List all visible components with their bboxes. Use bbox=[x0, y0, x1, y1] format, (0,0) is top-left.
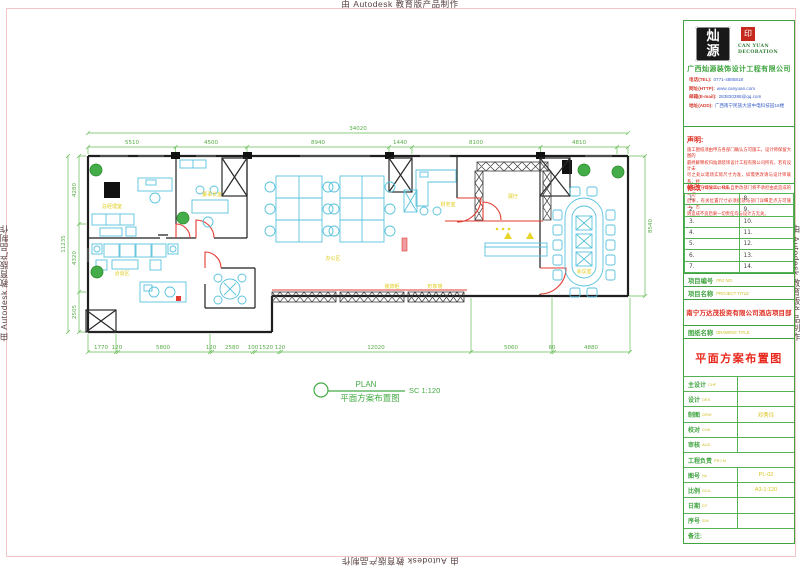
svg-text:5800: 5800 bbox=[156, 345, 170, 351]
field-label-en: DES bbox=[702, 397, 710, 402]
label-showroom: 展厅 bbox=[508, 194, 518, 200]
svg-text:4500: 4500 bbox=[204, 140, 218, 146]
revision-cell: 7. bbox=[685, 261, 740, 272]
callout-title-en: PLAN bbox=[356, 380, 377, 389]
svg-text:8100: 8100 bbox=[469, 140, 483, 146]
company-contacts: 电话(TEL):0771-4885818 网址(HTTP):www.canyua… bbox=[689, 76, 791, 111]
tv-panel bbox=[104, 182, 120, 198]
field-row-designer: 设计DES bbox=[684, 391, 794, 406]
label-finance: 财务室 bbox=[440, 201, 455, 208]
svg-text:4810: 4810 bbox=[572, 140, 586, 146]
furniture bbox=[92, 160, 615, 304]
columns bbox=[104, 152, 572, 198]
field-label-en: No bbox=[702, 473, 707, 478]
field-row-scale: 比例SCA A3-1:120 bbox=[684, 482, 794, 497]
contact-label: 网址(HTTP): bbox=[689, 85, 715, 94]
svg-text:1440: 1440 bbox=[393, 140, 407, 146]
field-label: 审核 bbox=[688, 440, 700, 449]
field-label: 备注: bbox=[688, 531, 702, 540]
svg-text:2505: 2505 bbox=[72, 305, 78, 319]
field-value bbox=[738, 377, 794, 391]
project-number-label-en: PRJ NO. bbox=[716, 278, 733, 283]
label-gm-office: 总经理室 bbox=[102, 203, 122, 210]
label-deco-cabinet: 装饰柜 bbox=[384, 283, 399, 290]
svg-text:5060: 5060 bbox=[504, 345, 518, 351]
svg-text:8540: 8540 bbox=[648, 219, 654, 233]
brand-english: CAN YUAN DECORATION bbox=[738, 44, 778, 56]
field-row-remarks: 备注: bbox=[684, 528, 794, 543]
field-label-en: CHF bbox=[708, 382, 716, 387]
field-label: 比例 bbox=[688, 486, 700, 495]
label-meeting: 会议室 bbox=[576, 268, 591, 275]
label-lounge: 洽谈区 bbox=[114, 270, 129, 277]
contact-email: 邮箱(E-mail):283830388@qq.com bbox=[689, 93, 791, 102]
reception-lamps bbox=[496, 228, 534, 239]
project-number-label: 项目编号 bbox=[688, 276, 713, 285]
shaft-boxes bbox=[86, 158, 570, 332]
project-name: 南宁万达茂投资有限公司酒店项目部 bbox=[684, 299, 794, 325]
field-row-proofread: 校对CHK bbox=[684, 422, 794, 437]
field-label: 图号 bbox=[688, 471, 700, 480]
contact-value: www.canyuan.com bbox=[717, 85, 755, 94]
svg-text:1520: 1520 bbox=[259, 345, 273, 351]
field-label-en: PRJ M bbox=[714, 458, 726, 463]
revision-cell: 13. bbox=[739, 250, 794, 261]
stamp-char-top: 灿 bbox=[695, 29, 731, 44]
floor-plan-drawing: 34020 5510 4500 8940 1440 8100 4810 1123… bbox=[50, 112, 662, 412]
window-lines bbox=[88, 156, 612, 262]
revision-row: 5.12. bbox=[685, 239, 794, 250]
company-logo-section: 灿 源 印 CAN YUAN DECORATION 广西灿源装饰设计工程有限公司… bbox=[684, 21, 794, 126]
revision-cell: 2. bbox=[685, 205, 740, 216]
revision-cell: 1. bbox=[685, 194, 740, 205]
svg-text:1770: 1770 bbox=[94, 345, 108, 351]
red-seal-icon: 印 bbox=[741, 27, 755, 41]
drawing-title: 平面方案布置图 bbox=[684, 338, 794, 376]
drawing-title-row: 图纸名称 DRAWING TITLE bbox=[684, 325, 794, 338]
callout-scale: SC 1:120 bbox=[409, 386, 440, 395]
revision-row: 1.8. bbox=[685, 194, 794, 205]
contact-value: 283830388@qq.com bbox=[719, 93, 762, 102]
drawing-title-label-en: DRAWING TITLE bbox=[716, 330, 749, 335]
field-row-drawing-no: 图号No PL-02 bbox=[684, 467, 794, 482]
contact-address: 地址(ADD):广西南宁民族大道中电科技园16楼 bbox=[689, 102, 791, 111]
field-value bbox=[738, 392, 794, 406]
svg-text:120: 120 bbox=[112, 345, 123, 351]
revision-cell: 12. bbox=[739, 239, 794, 250]
field-row-date: 日期DT bbox=[684, 497, 794, 512]
svg-text:120: 120 bbox=[275, 345, 286, 351]
dimension-left: 11235 4280 4320 2505 bbox=[61, 154, 86, 334]
project-title-label-en: PROJECT TITLE bbox=[716, 291, 749, 296]
svg-text:120: 120 bbox=[206, 345, 217, 351]
field-label: 工程负责 bbox=[688, 456, 712, 465]
canyuan-stamp-logo: 灿 源 bbox=[695, 26, 731, 62]
project-title-row: 项目名称 PROJECT TITLE bbox=[684, 286, 794, 299]
svg-text:12020: 12020 bbox=[367, 345, 385, 351]
revision-cell: 14. bbox=[739, 261, 794, 272]
autodesk-watermark-top: 由 Autodesk 教育版产品制作 bbox=[341, 0, 458, 10]
revision-row: 2.9. bbox=[685, 205, 794, 216]
label-chairman-office: 董事长室 bbox=[202, 191, 222, 198]
field-row-draftsman: 制图DRW 邓秀玲 bbox=[684, 406, 794, 421]
svg-text:5510: 5510 bbox=[125, 140, 139, 146]
contact-label: 地址(ADD): bbox=[689, 102, 713, 111]
svg-text:2580: 2580 bbox=[225, 345, 239, 351]
svg-text:34020: 34020 bbox=[349, 126, 367, 132]
field-label: 设计 bbox=[688, 395, 700, 404]
revision-row: 7.14. bbox=[685, 261, 794, 272]
revision-cell: 9. bbox=[739, 205, 794, 216]
field-value bbox=[738, 438, 794, 452]
statement-label: 声明: bbox=[687, 137, 703, 144]
statement-line: 施工图纸须由甲方各部门确认方可施工，设计师保留大图的 bbox=[687, 147, 791, 160]
statement-section: 声明: 施工图纸须由甲方各部门确认方可施工，设计师保留大图的 最终解释权归灿源装… bbox=[684, 126, 794, 183]
drawing-title-label: 图纸名称 bbox=[688, 328, 713, 337]
field-label: 序号 bbox=[688, 516, 700, 525]
brand-line2: DECORATION bbox=[738, 50, 778, 56]
revisions-header: 修改 REVISIONS bbox=[684, 183, 794, 193]
field-label-en: CHK bbox=[702, 427, 710, 432]
stamp-char-bottom: 源 bbox=[695, 44, 731, 59]
project-number-row: 项目编号 PRJ NO. bbox=[684, 273, 794, 286]
contact-web: 网址(HTTP):www.canyuan.com bbox=[689, 85, 791, 94]
contact-value: 广西南宁民族大道中电科技园16楼 bbox=[715, 102, 784, 111]
field-label-en: AUD bbox=[702, 442, 710, 447]
field-label: 主设计 bbox=[688, 380, 706, 389]
label-feature-wall: 形象墙 bbox=[427, 283, 442, 290]
callout-title-cn: 平面方案布置图 bbox=[340, 393, 400, 403]
field-row-serial: 序号S/N bbox=[684, 513, 794, 528]
svg-text:60: 60 bbox=[549, 345, 556, 351]
field-value bbox=[738, 514, 794, 528]
title-block: 灿 源 印 CAN YUAN DECORATION 广西灿源装饰设计工程有限公司… bbox=[683, 20, 795, 544]
revision-row: 6.13. bbox=[685, 250, 794, 261]
svg-text:4280: 4280 bbox=[72, 183, 78, 197]
contact-phone: 电话(TEL):0771-4885818 bbox=[689, 76, 791, 85]
revision-cell: 11. bbox=[739, 227, 794, 238]
field-row-project-manager: 工程负责PRJ M bbox=[684, 452, 794, 467]
field-label-en: S/N bbox=[702, 518, 709, 523]
autodesk-watermark-bottom: 由 Autodesk 教育版产品制作 bbox=[341, 555, 458, 567]
plan-callout: PLAN 平面方案布置图 SC 1:120 bbox=[314, 380, 440, 403]
field-label: 制图 bbox=[688, 410, 700, 419]
contact-label: 电话(TEL): bbox=[689, 76, 711, 85]
svg-text:100: 100 bbox=[248, 345, 259, 351]
field-row-audit: 审核AUD bbox=[684, 437, 794, 452]
dimension-top: 34020 5510 4500 8940 1440 8100 4810 bbox=[86, 126, 630, 154]
contact-value: 0771-4885818 bbox=[713, 76, 743, 85]
field-value bbox=[738, 423, 794, 437]
revision-cell: 10. bbox=[739, 216, 794, 227]
revision-cell: 5. bbox=[685, 239, 740, 250]
statement-line: 最终解释权归灿源装饰设计工程有限公司所有，若有设计未 bbox=[687, 160, 791, 173]
revisions-label-en: REVISIONS bbox=[703, 186, 728, 191]
contact-label: 邮箱(E-mail): bbox=[689, 93, 717, 102]
field-label-en: DRW bbox=[702, 412, 711, 417]
svg-text:4880: 4880 bbox=[584, 345, 598, 351]
field-label-en: DT bbox=[702, 503, 707, 508]
revision-row: 4.11. bbox=[685, 227, 794, 238]
revision-cell: 4. bbox=[685, 227, 740, 238]
field-row-chief-designer: 主设计CHF bbox=[684, 376, 794, 391]
field-label: 校对 bbox=[688, 425, 700, 434]
dimension-bottom: 1770 120 5800 120 2580 100 1520 120 1202… bbox=[86, 298, 632, 354]
dimension-right: 8540 bbox=[628, 154, 654, 298]
revision-cell: 8. bbox=[739, 194, 794, 205]
project-title-label: 项目名称 bbox=[688, 289, 713, 298]
fields-table: 主设计CHF 设计DES 制图DRW 邓秀玲 校对CHK 审核AUD 工程负责P… bbox=[684, 376, 794, 543]
label-open-office: 办公区 bbox=[325, 255, 340, 262]
field-value: 邓秀玲 bbox=[738, 407, 794, 421]
field-value: PL-02 bbox=[738, 468, 794, 482]
field-label: 日期 bbox=[688, 501, 700, 510]
field-label-en: SCA bbox=[702, 488, 710, 493]
field-value: A3-1:120 bbox=[738, 483, 794, 497]
svg-text:8940: 8940 bbox=[311, 140, 325, 146]
revisions-label-cn: 修改 bbox=[687, 185, 701, 192]
revision-row: 3.10. bbox=[685, 216, 794, 227]
svg-text:4320: 4320 bbox=[72, 251, 78, 265]
doors-red bbox=[176, 198, 566, 301]
company-name: 广西灿源装饰设计工程有限公司 bbox=[684, 64, 794, 74]
revision-cell: 3. bbox=[685, 216, 740, 227]
autodesk-watermark-left: 由 Autodesk 教育版产品制作 bbox=[0, 224, 10, 341]
revisions-table: 1.8. 2.9. 3.10. 4.11. 5.12. 6.13. 7.14. bbox=[684, 193, 794, 273]
field-value bbox=[738, 498, 794, 512]
revision-cell: 6. bbox=[685, 250, 740, 261]
svg-text:11235: 11235 bbox=[61, 235, 67, 253]
